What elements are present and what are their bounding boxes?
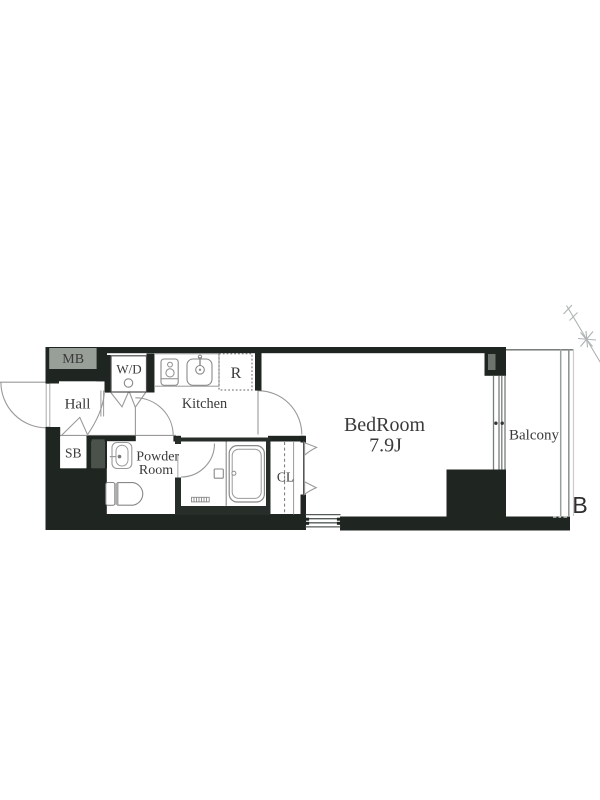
svg-text:Hall: Hall <box>65 396 91 412</box>
svg-text:W/D: W/D <box>116 361 141 376</box>
svg-text:CL: CL <box>277 469 294 484</box>
svg-text:B: B <box>572 492 587 518</box>
svg-text:7.9J: 7.9J <box>369 435 402 457</box>
svg-text:Kitchen: Kitchen <box>182 396 227 412</box>
svg-text:SB: SB <box>65 446 82 461</box>
svg-text:Room: Room <box>139 463 173 478</box>
svg-text:MB: MB <box>62 352 84 367</box>
svg-text:Balcony: Balcony <box>509 427 559 443</box>
svg-text:R: R <box>231 365 242 382</box>
svg-text:BedRoom: BedRoom <box>344 414 426 436</box>
